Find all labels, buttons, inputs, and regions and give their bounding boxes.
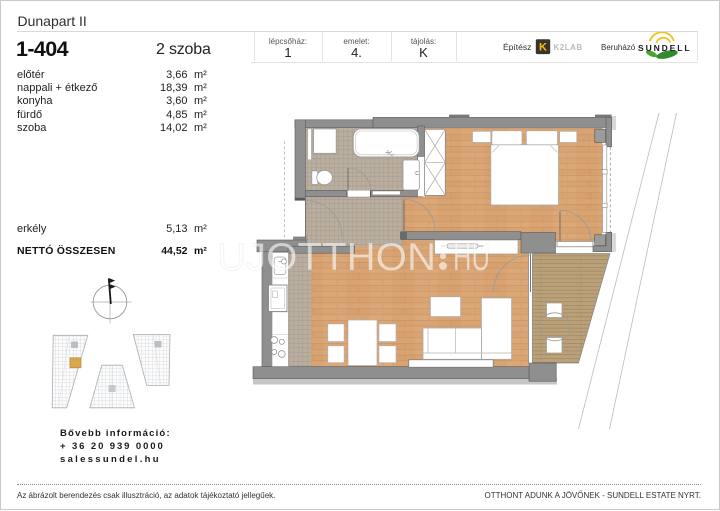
svg-text:HU: HU <box>453 236 490 279</box>
svg-text:UJOTTHON: UJOTTHON <box>217 236 436 279</box>
